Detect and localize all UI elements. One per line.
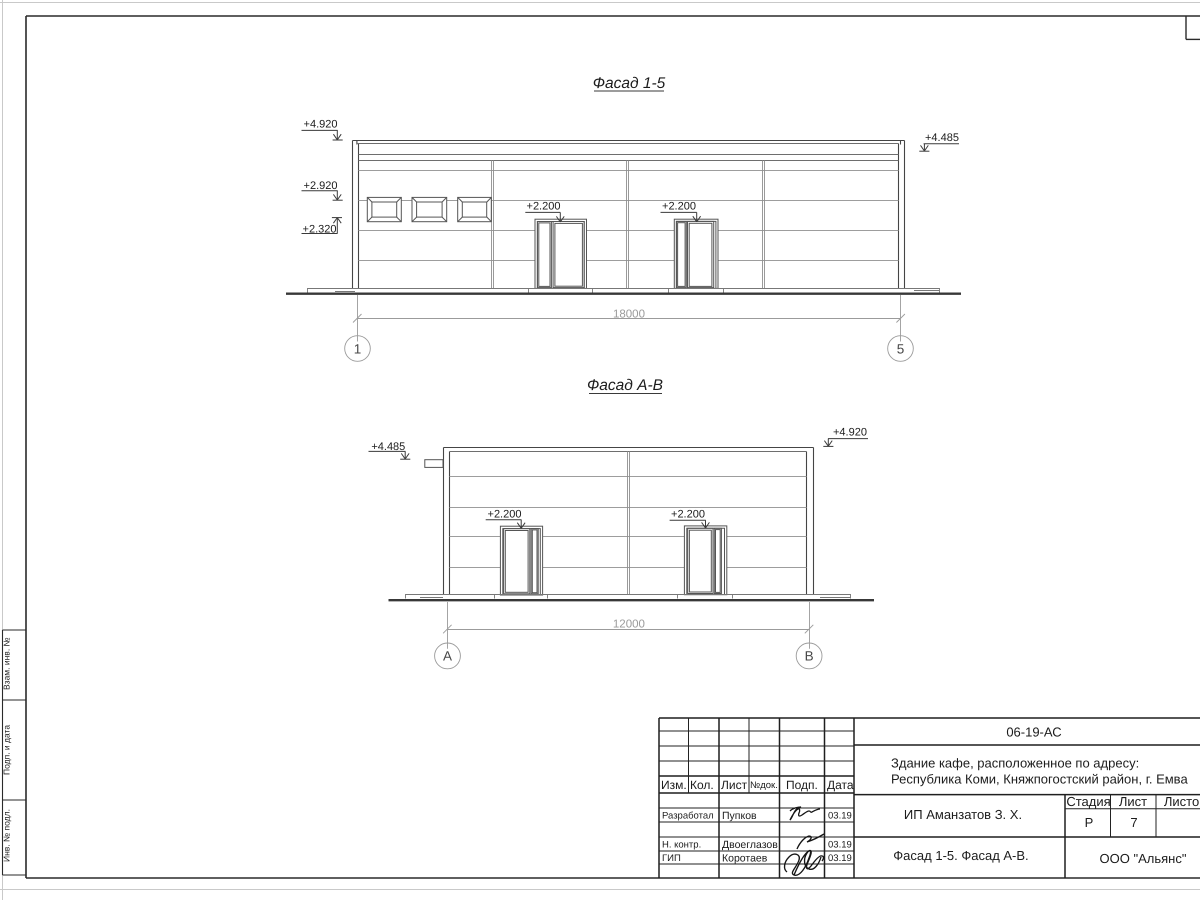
svg-text:Лист: Лист	[721, 778, 748, 792]
svg-text:+4.920: +4.920	[304, 119, 338, 131]
svg-text:Фасад А-В: Фасад А-В	[587, 377, 663, 394]
svg-text:06-19-АС: 06-19-АС	[1006, 725, 1061, 740]
svg-text:+2.200: +2.200	[671, 508, 705, 520]
svg-text:Лист: Лист	[1119, 794, 1147, 809]
svg-text:Подп. и дата: Подп. и дата	[2, 725, 12, 775]
svg-text:В: В	[805, 649, 814, 664]
svg-text:Двоеглазов: Двоеглазов	[722, 839, 778, 851]
svg-text:Фасад 1-5. Фасад А-В.: Фасад 1-5. Фасад А-В.	[893, 848, 1028, 863]
svg-text:Р: Р	[1085, 815, 1094, 830]
svg-text:1: 1	[354, 341, 362, 356]
svg-text:Листов: Листов	[1164, 794, 1200, 809]
svg-text:Дата: Дата	[827, 778, 854, 792]
svg-text:ИП Аманзатов З. Х.: ИП Аманзатов З. Х.	[904, 807, 1022, 822]
svg-text:12000: 12000	[613, 619, 645, 631]
svg-text:+2.200: +2.200	[527, 201, 561, 213]
svg-text:Подп.: Подп.	[786, 778, 818, 792]
svg-text:Изм.: Изм.	[661, 778, 687, 792]
svg-text:03.19: 03.19	[828, 811, 852, 822]
svg-text:+4.485: +4.485	[925, 132, 959, 144]
svg-text:ООО "Альянс": ООО "Альянс"	[1100, 851, 1187, 866]
svg-text:Н. контр.: Н. контр.	[662, 840, 701, 851]
svg-text:03.19: 03.19	[828, 840, 852, 851]
svg-text:+2.200: +2.200	[662, 201, 696, 213]
svg-text:Стадия: Стадия	[1066, 794, 1110, 809]
svg-text:Коротаев: Коротаев	[722, 853, 768, 865]
svg-text:Республика Коми, Княжпогостски: Республика Коми, Княжпогостский район, г…	[891, 772, 1188, 787]
svg-text:№док.: №док.	[750, 780, 778, 791]
svg-text:Пупков: Пупков	[722, 810, 757, 822]
svg-text:5: 5	[897, 341, 905, 356]
svg-text:Фасад 1-5: Фасад 1-5	[593, 75, 666, 92]
svg-text:Разработал: Разработал	[662, 811, 714, 822]
svg-text:18000: 18000	[613, 308, 645, 320]
svg-text:+2.920: +2.920	[304, 180, 338, 192]
svg-text:+2.200: +2.200	[488, 508, 522, 520]
svg-text:Здание кафе, расположенное по: Здание кафе, расположенное по адресу:	[891, 756, 1139, 771]
svg-text:ГИП: ГИП	[662, 853, 681, 864]
svg-text:7: 7	[1130, 815, 1137, 830]
svg-text:03.19: 03.19	[828, 853, 852, 864]
svg-text:Инв. № подл.: Инв. № подл.	[2, 809, 12, 862]
svg-text:А: А	[443, 649, 452, 664]
svg-text:+4.920: +4.920	[833, 426, 867, 438]
svg-text:Кол.: Кол.	[690, 778, 714, 792]
svg-text:Взам. инв. №: Взам. инв. №	[2, 637, 12, 690]
